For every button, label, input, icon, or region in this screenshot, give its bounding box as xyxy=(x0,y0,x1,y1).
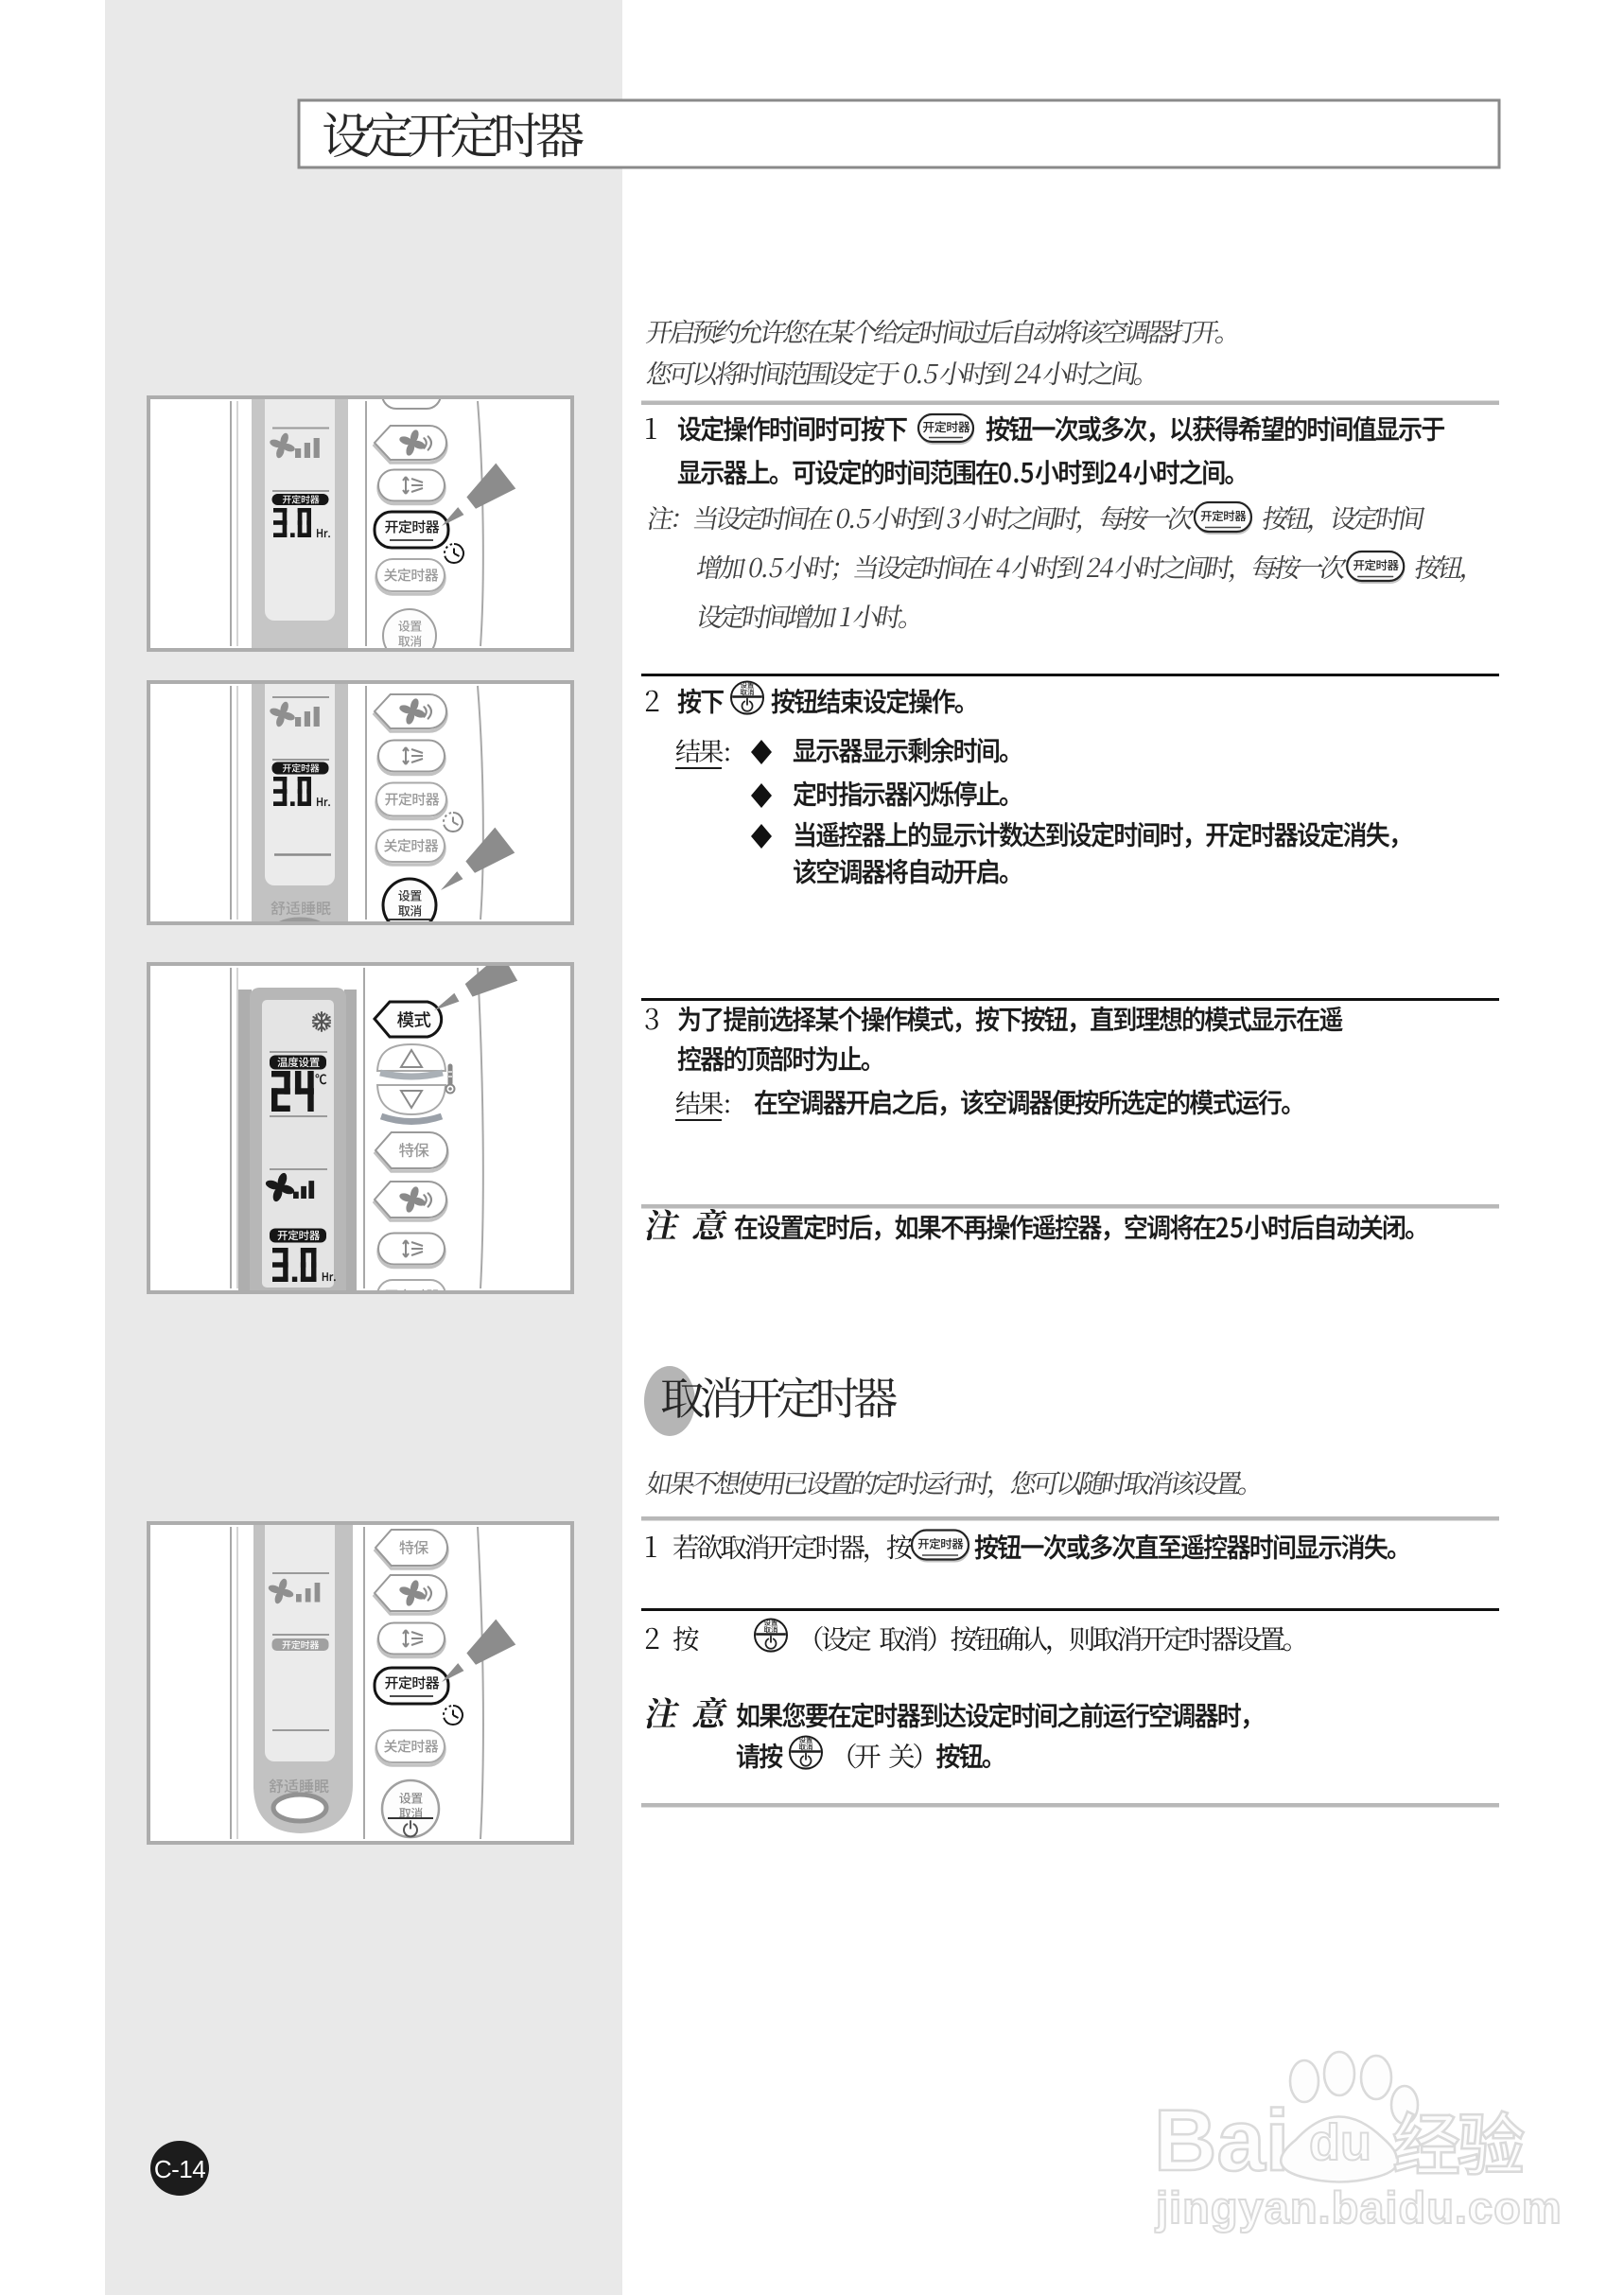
svg-text:C-14: C-14 xyxy=(154,2155,205,2183)
svg-text:Bai: Bai xyxy=(1154,2093,1289,2189)
svg-text:du: du xyxy=(1309,2114,1371,2171)
svg-text:jingyan.baidu.com: jingyan.baidu.com xyxy=(1155,2182,1563,2233)
